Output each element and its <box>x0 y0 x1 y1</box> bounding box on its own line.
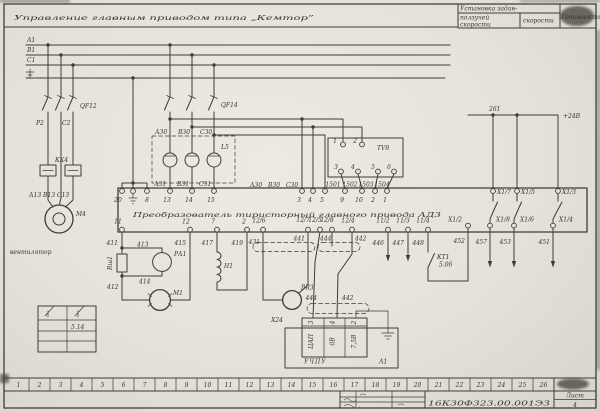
term-4: 4 <box>307 197 312 204</box>
breaker-qf14: QF14 <box>165 45 238 153</box>
ruler-cell: 4 <box>79 382 84 389</box>
wire-a31: А31 <box>153 181 166 188</box>
h1-label: Н1 <box>223 263 233 270</box>
internal-switches: Х1/8 Х1/6 Х1/4 Х1/2 <box>447 194 573 229</box>
m1-label: М1 <box>172 290 183 297</box>
ruler-cell: 12 <box>246 382 254 389</box>
feed-line-paths <box>170 119 362 189</box>
term-2: 2 <box>370 197 375 204</box>
qf14-wires <box>165 45 215 153</box>
wire-c31: С31 <box>199 181 211 188</box>
sheet-number: 4 <box>572 402 577 409</box>
wire-444-top: 444 <box>319 236 332 243</box>
field-winding: Н1 417 419 <box>201 232 247 290</box>
ruler-cell: 5 <box>101 382 105 389</box>
wire-411: 411 <box>106 240 118 247</box>
ruler-cell: 9 <box>185 382 189 389</box>
wire-444-low: 444 <box>305 295 318 302</box>
legend-ref: 5.14 <box>71 324 85 331</box>
term-10: 10 <box>355 197 363 204</box>
l5-choke-2 <box>185 153 199 167</box>
term-13: 13 <box>163 197 171 204</box>
wire-448: 448 <box>412 240 425 247</box>
ruler-cell: 22 <box>455 382 464 389</box>
term-7: 7 <box>211 219 215 226</box>
breaker-qf12: QF12 Р2 С2 <box>35 45 97 207</box>
bus-lines <box>26 45 450 78</box>
term-12: 12 <box>182 219 190 226</box>
wire-b30-top: В30 <box>177 129 190 136</box>
term-x1-8: Х1/8 <box>495 217 510 224</box>
ruler-cell: 23 <box>476 382 485 389</box>
term-11-3: 11/3 <box>396 218 410 225</box>
wire-p2: Р2 <box>35 120 44 127</box>
br3-label: ВR3 <box>300 285 314 292</box>
shield-oval-1 <box>253 243 315 252</box>
tv8-label: ТV8 <box>377 145 389 152</box>
wire-414: 414 <box>138 279 151 286</box>
x24-cell-dac: ЦАП <box>308 333 315 349</box>
term-x1-4: Х1/4 <box>558 217 573 224</box>
table-header: Установка задан- <box>460 6 517 13</box>
tacho-br3: ВR3 431 441 444 442 444 442 <box>248 232 369 318</box>
schematic-canvas: Управление главным приводом типа „Кемтор… <box>0 0 600 412</box>
document-number: 16К30Ф323.00.001Э3 <box>428 401 550 408</box>
br3-circle <box>283 291 302 310</box>
term-15: 15 <box>207 197 215 204</box>
motor-m4: А13 В13 С13 М4 вентилятор <box>10 192 86 256</box>
wire-412: 412 <box>106 284 119 291</box>
term-5: 5 <box>320 197 324 204</box>
x24-cell-75v: 7,5В <box>351 334 358 349</box>
plus24-wires <box>468 115 558 189</box>
l5-choke-3 <box>207 153 221 167</box>
term-9: 9 <box>340 197 344 204</box>
tv8-terminal-2 <box>360 142 365 147</box>
ruler-cell: 19 <box>393 382 401 389</box>
wire-417: 417 <box>201 240 214 247</box>
term-12-6: 12/6 <box>252 218 266 225</box>
reactor-l5: L5 А30 В30 С30 А31 В31 С31 <box>152 129 235 189</box>
term-x1-2-label: Х1/2 <box>447 217 462 224</box>
ruler-lines <box>4 378 596 391</box>
power-buses: А1 В1 С1 <box>26 37 450 78</box>
ground-terminal-icon <box>129 194 137 204</box>
tv8-terminal-1 <box>341 142 346 147</box>
terminal-x1-2 <box>466 223 471 228</box>
wire-arrows <box>386 255 555 268</box>
term-11-4: 11/4 <box>416 218 430 225</box>
wire-b31: В31 <box>176 181 189 188</box>
drawing-title: Управление главным приводом типа „Кемтор… <box>14 15 314 22</box>
scanned-schematic-sheet: Управление главным приводом типа „Кемтор… <box>0 0 600 412</box>
armature-circuit: Rш1 РА1 М1 411 413 414 412 415 <box>106 232 190 310</box>
term-8: 8 <box>145 197 149 204</box>
shield-oval-3 <box>307 304 369 314</box>
wire-261: 261 <box>488 106 500 113</box>
ammeter-pa1 <box>153 253 172 272</box>
x24-pin-3: 3 <box>308 320 315 324</box>
sheet-label: Лист <box>565 393 584 400</box>
converter-name: Преобразователь тиристорный главного при… <box>131 212 441 219</box>
ruler-cell: 16 <box>330 382 338 389</box>
wire-442-low: 442 <box>341 295 354 302</box>
converter-box: Преобразователь тиристорный главного при… <box>113 78 587 232</box>
ruler-cell: 7 <box>143 382 147 389</box>
wire-447: 447 <box>392 240 405 247</box>
m4-label: М4 <box>75 211 86 218</box>
kt1-name: КТ1 <box>436 254 449 261</box>
uchpu-label: УЧПУ <box>304 359 327 366</box>
legend-grid <box>38 306 96 352</box>
sheet-box-smudge <box>557 379 589 390</box>
ruler-cell: 26 <box>539 382 548 389</box>
wire-b13: В13 <box>42 192 55 199</box>
ruler-cell: 21 <box>434 382 443 389</box>
transformer-tv8: ТV8 1 2 3 4 5 6 1501 1502 1503 1504 <box>325 138 403 189</box>
tv8-num-1: 1 <box>333 138 337 145</box>
wire-451: 451 <box>538 239 550 246</box>
ground-bracket <box>122 78 147 189</box>
signature-scribbles <box>344 394 404 408</box>
motor-m4-inner <box>53 213 65 225</box>
wire-a13: А13 <box>28 192 41 199</box>
wire-c2: С2 <box>62 120 71 127</box>
ruler-cell: 18 <box>372 382 380 389</box>
table-cell-creep2: скорости <box>460 22 491 29</box>
rsh1-label: Rш1 <box>107 256 114 271</box>
term-3: 3 <box>297 197 301 204</box>
feed-lines: А30 В30 С30 <box>170 119 362 189</box>
armature-m1 <box>150 290 171 311</box>
cnc-unit-uchpu: Х24 3 4 2 ЦАП 0В 7,5В УЧПУ А1 <box>270 311 398 368</box>
term-x1-3: Х1/3 <box>561 189 576 196</box>
qf12-label: QF12 <box>80 103 97 110</box>
ruler-cell: 1 <box>17 382 21 389</box>
l5-choke-1 <box>163 153 177 167</box>
ruler-cell: 8 <box>164 382 168 389</box>
tv8-num-6: 6 <box>387 164 391 171</box>
x24-cell-0v: 0В <box>330 337 337 346</box>
term-12-8: 12/8 <box>320 217 334 224</box>
table-cell-ready: Готовность <box>560 14 600 21</box>
wire-452: 452 <box>453 238 466 245</box>
term-14: 14 <box>185 197 193 204</box>
shunt-rsh1 <box>117 254 127 272</box>
tv8-num-3: 3 <box>334 164 338 171</box>
term-x1-6: Х1/6 <box>519 217 534 224</box>
term-1: 1 <box>383 197 387 204</box>
tacho-wires <box>263 232 352 318</box>
m1-brushes <box>148 294 172 307</box>
wire-457: 457 <box>475 239 488 246</box>
l5-label: L5 <box>220 144 229 151</box>
wire-413: 413 <box>136 242 149 249</box>
bus-label-c1: С1 <box>27 57 35 64</box>
ruler: 1 2 3 4 5 6 7 8 9 10 11 12 13 14 15 16 1… <box>4 378 596 391</box>
kt1-pos: 5.06 <box>439 262 453 269</box>
plus24-bus: 261 +24В <box>468 106 581 189</box>
tv8-num-4: 4 <box>350 164 355 171</box>
term-2b: 2 <box>241 219 246 226</box>
converter-bottom-terminals: 11 12 7 2 12/6 12/7 12/5 12/8 12/4 11/2 … <box>114 217 430 232</box>
ruler-cell: 24 <box>497 382 506 389</box>
motor-m4-circle <box>45 205 73 233</box>
table-cell-speed: скорости <box>523 18 554 25</box>
converter-top-terminals: 20 8 13 14 15 3 4 5 9 10 2 1 Х1/7 Х1/5 Х… <box>113 189 576 204</box>
wire-446: 446 <box>372 240 385 247</box>
x24-pin-4: 4 <box>330 320 337 325</box>
tv8-num-2: 2 <box>352 138 357 145</box>
term-x1-7: Х1/7 <box>496 189 511 196</box>
plus24-label: +24В <box>563 113 581 120</box>
legend-contact-glyphs <box>45 306 88 317</box>
term-11: 11 <box>114 219 122 226</box>
shield-oval-2 <box>318 243 360 252</box>
fan-label: вентилятор <box>10 249 52 256</box>
relay-contact-kt1: 446 447 448 КТ1 5.06 452 457 453 451 <box>372 228 556 281</box>
wire-415: 415 <box>174 240 187 247</box>
ruler-cell: 2 <box>37 382 42 389</box>
bus-label-b1: В1 <box>26 47 35 54</box>
ruler-cell: 15 <box>309 382 317 389</box>
term-20: 20 <box>113 197 122 204</box>
ruler-cell: 6 <box>122 382 126 389</box>
tv8-terminal-6 <box>392 169 397 174</box>
ruler-cell: 25 <box>518 382 527 389</box>
output-wires <box>388 228 553 281</box>
tv8-terminal-5 <box>376 169 381 174</box>
ground-symbol-bus <box>26 69 34 78</box>
kk4-label: КК4 <box>54 157 68 164</box>
uchpu-ground <box>356 311 394 339</box>
ruler-cell: 10 <box>204 382 212 389</box>
term-x1-5: Х1/5 <box>520 189 535 196</box>
wire-442-top: 442 <box>354 236 367 243</box>
ruler-cell: 17 <box>351 382 359 389</box>
ruler-cell: 20 <box>413 382 422 389</box>
wire-431: 431 <box>248 239 260 246</box>
bus-label-a1: А1 <box>26 37 35 44</box>
a1-unit-label: А1 <box>378 359 387 366</box>
corner-table: Установка задан- ползучей скорости скоро… <box>458 4 600 29</box>
wire-c13: С13 <box>57 192 69 199</box>
tv8-num-5: 5 <box>371 164 375 171</box>
x24-pin-2: 2 <box>351 320 358 325</box>
ruler-cell: 13 <box>267 382 275 389</box>
ruler-cell: 3 <box>59 382 63 389</box>
wire-c30-top: С30 <box>200 129 212 136</box>
ruler-cell: 11 <box>225 382 233 389</box>
wire-453: 453 <box>499 239 512 246</box>
tv8-terminal-4 <box>356 169 361 174</box>
wire-a30-top: А30 <box>154 129 167 136</box>
tv8-terminal-3 <box>339 169 344 174</box>
legend-box: 5.14 <box>38 306 96 352</box>
wire-441: 441 <box>293 236 305 243</box>
x24-label: Х24 <box>270 317 283 324</box>
pa1-label: РА1 <box>173 251 186 258</box>
table-cell-creep1: ползучей <box>460 15 489 22</box>
ruler-cell: 14 <box>288 382 296 389</box>
wire-419: 419 <box>231 240 244 247</box>
term-11-2: 11/2 <box>376 218 390 225</box>
term-12-4: 12/4 <box>341 218 355 225</box>
qf14-label: QF14 <box>221 102 238 109</box>
